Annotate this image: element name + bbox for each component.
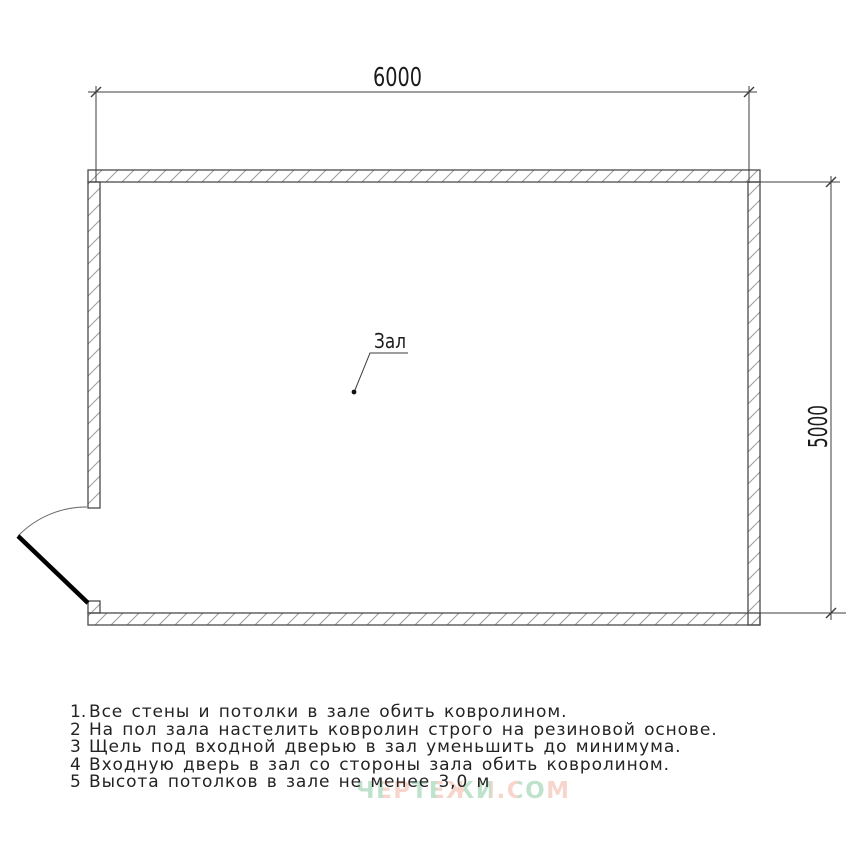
door-jamb — [88, 601, 100, 613]
note-number: 5 — [70, 774, 88, 792]
door-swing-arc — [18, 507, 87, 536]
dim-height-value: 5000 — [804, 405, 834, 448]
note-row: 5 Высота потолков в зале не менее 3,0 м — [70, 774, 718, 792]
room-label-leader-dot — [352, 390, 357, 395]
note-text: Высота потолков в зале не менее 3,0 м — [89, 774, 490, 792]
note-number: 1. — [70, 704, 88, 722]
wall-left — [88, 182, 100, 508]
room-label: Зал — [374, 329, 406, 353]
wall-bottom — [88, 613, 760, 625]
note-row: 1. Все стены и потолки в зале обить ковр… — [70, 704, 718, 722]
wall-right — [748, 182, 760, 625]
notes-list: 1. Все стены и потолки в зале обить ковр… — [70, 704, 718, 792]
door-leaf — [18, 536, 88, 603]
room-label-leader — [355, 353, 408, 390]
wall-top — [88, 170, 760, 182]
dim-width-value: 6000 — [373, 63, 422, 93]
note-text: Все стены и потолки в зале обить ковроли… — [89, 704, 567, 722]
